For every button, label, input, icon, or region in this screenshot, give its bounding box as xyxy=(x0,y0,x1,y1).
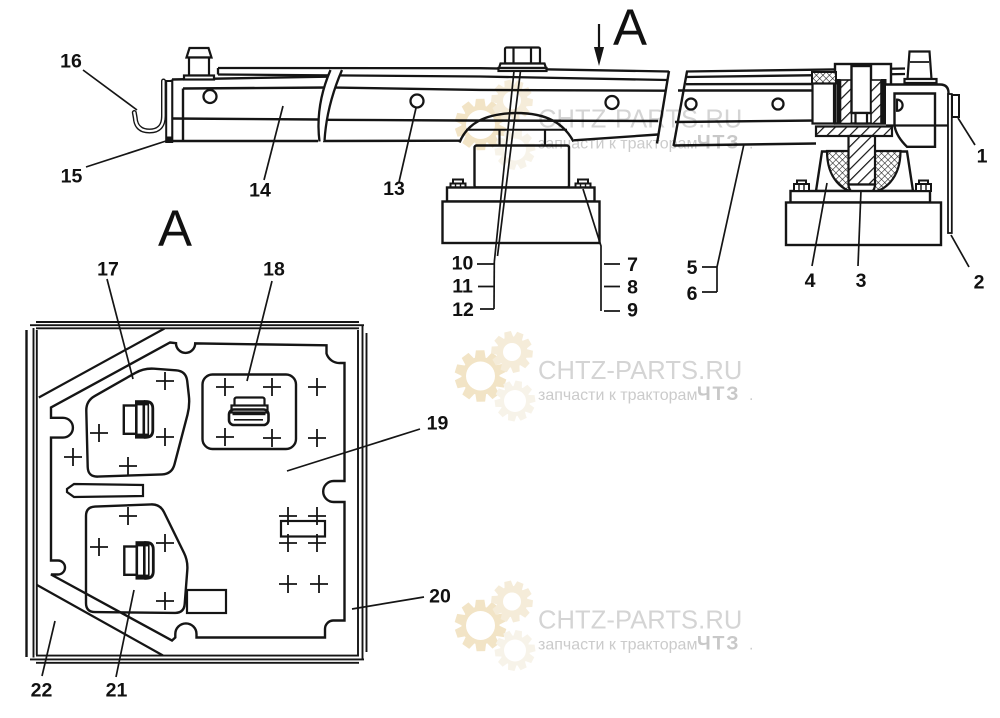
svg-text:8: 8 xyxy=(627,277,638,299)
svg-text:A: A xyxy=(613,0,647,56)
svg-text:17: 17 xyxy=(97,259,119,281)
svg-text:A: A xyxy=(158,200,192,257)
svg-text:19: 19 xyxy=(427,413,449,435)
svg-text:7: 7 xyxy=(627,254,638,276)
svg-text:11: 11 xyxy=(452,276,473,298)
svg-text:5: 5 xyxy=(687,257,698,279)
svg-text:16: 16 xyxy=(60,51,82,73)
svg-text:15: 15 xyxy=(61,166,83,188)
svg-text:18: 18 xyxy=(263,259,285,281)
svg-text:21: 21 xyxy=(106,680,128,702)
svg-text:13: 13 xyxy=(383,178,405,200)
svg-text:6: 6 xyxy=(687,283,698,305)
svg-text:10: 10 xyxy=(452,253,474,275)
svg-text:20: 20 xyxy=(429,586,451,608)
svg-text:2: 2 xyxy=(974,272,985,294)
svg-text:3: 3 xyxy=(856,270,867,292)
svg-text:12: 12 xyxy=(452,299,474,321)
svg-text:22: 22 xyxy=(31,680,53,702)
svg-text:1: 1 xyxy=(977,146,988,168)
svg-text:14: 14 xyxy=(249,180,271,202)
svg-text:9: 9 xyxy=(627,300,638,322)
svg-text:4: 4 xyxy=(805,270,816,292)
